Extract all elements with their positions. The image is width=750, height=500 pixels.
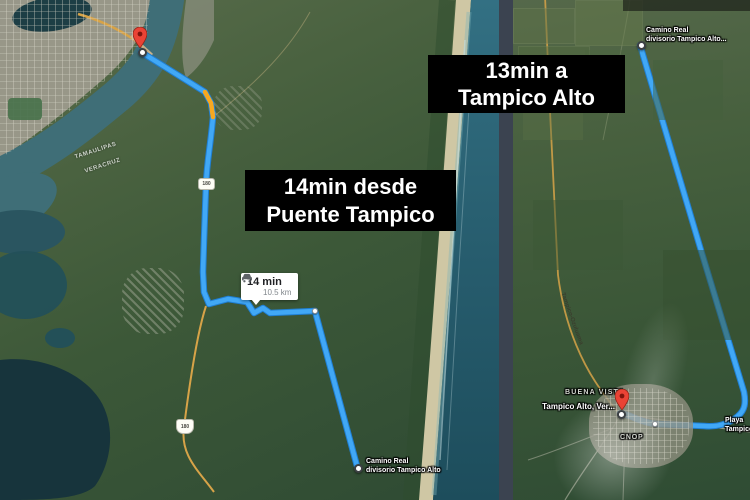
route-start-dot[interactable]	[138, 48, 147, 57]
pond	[45, 328, 75, 348]
district-label: CNOP	[620, 433, 643, 442]
annotation-left-line1: 14min desde	[245, 173, 456, 201]
forest-patch	[533, 200, 623, 270]
route-end-dot[interactable]	[617, 410, 626, 419]
dark-field	[623, 0, 750, 11]
park-area	[8, 98, 42, 120]
annotation-box-right: 13min a Tampico Alto	[428, 55, 625, 113]
village-patch-ne	[214, 86, 262, 130]
highway-south	[183, 306, 214, 492]
badge-pointer	[251, 299, 261, 305]
origin-label: Camino Real divisorio Tampico Alto...	[646, 26, 727, 44]
car-icon	[241, 273, 253, 283]
destination-label-line2: divisorio Tampico Alto	[366, 466, 441, 475]
forest-patch	[653, 60, 723, 120]
route-badge-left[interactable]: 14 min 10.5 km	[241, 273, 298, 300]
annotation-left-line2: Puente Tampico	[245, 201, 456, 229]
destination-pin-icon[interactable]	[615, 389, 629, 410]
lagoon-south	[0, 359, 110, 500]
coast-road-label: Playa Tampico A...	[725, 416, 750, 434]
origin-label-line1: Camino Real	[646, 26, 727, 35]
annotation-right-line2: Tampico Alto	[428, 84, 625, 111]
route-start-dot[interactable]	[637, 41, 646, 50]
coast-road-label-line1: Playa	[725, 416, 750, 425]
traffic-segment	[205, 92, 213, 117]
annotation-box-left: 14min desde Puente Tampico	[245, 170, 456, 231]
lagoon-west-2	[0, 251, 67, 319]
east-bank-town	[182, 0, 214, 78]
highway-shield-icon: 180	[198, 178, 215, 190]
highway-shield-icon: 180	[176, 419, 194, 434]
coast-road-label-line2: Tampico A...	[725, 425, 750, 434]
badge-distance: 10.5 km	[263, 288, 291, 297]
route-waypoint-dot[interactable]	[312, 308, 318, 314]
route-end-dot[interactable]	[354, 464, 363, 473]
destination-label-line1: Camino Real	[366, 457, 441, 466]
left-map-panel[interactable]: TAMAULIPAS VERACRUZ 180 180 Camino Real …	[0, 0, 499, 500]
village-patch	[122, 268, 184, 334]
origin-pin-icon[interactable]	[133, 27, 147, 48]
origin-label-line2: divisorio Tampico Alto...	[646, 35, 727, 44]
annotation-right-line1: 13min a	[428, 57, 625, 84]
dual-map-screenshot: TAMAULIPAS VERACRUZ 180 180 Camino Real …	[0, 0, 750, 500]
destination-label: Camino Real divisorio Tampico Alto	[366, 457, 441, 475]
farm-field	[513, 8, 575, 44]
town-label: Tampico Alto, Ver...	[531, 402, 615, 411]
route-waypoint-dot[interactable]	[652, 421, 658, 427]
lagoon-west-1	[0, 210, 65, 254]
